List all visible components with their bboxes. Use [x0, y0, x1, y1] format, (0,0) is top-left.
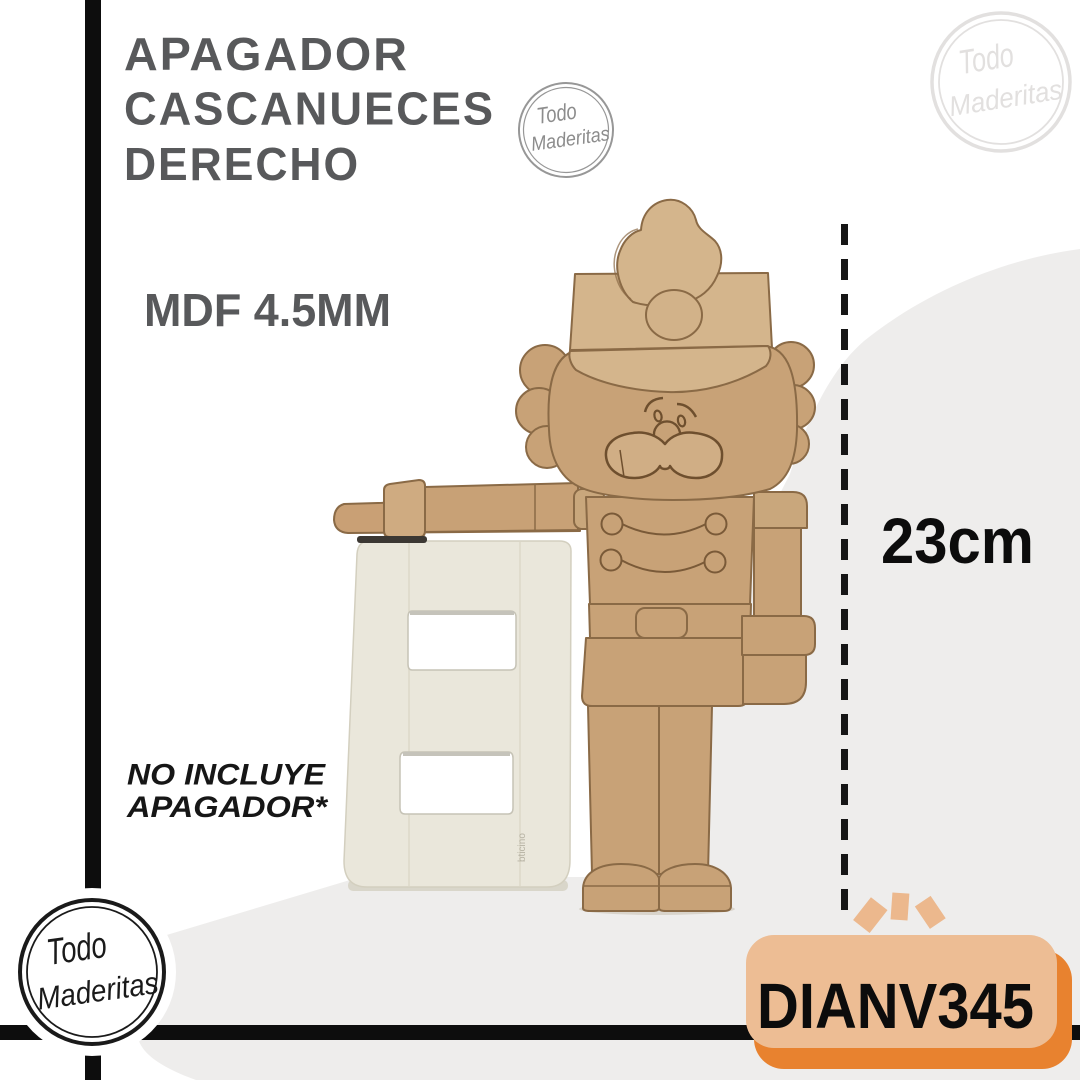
svg-text:APAGADOR*: APAGADOR* — [126, 791, 329, 824]
svg-text:DERECHO: DERECHO — [124, 138, 360, 190]
svg-text:APAGADOR: APAGADOR — [124, 28, 409, 80]
svg-text:Todo: Todo — [535, 97, 578, 128]
svg-text:MDF 4.5MM: MDF 4.5MM — [144, 284, 391, 336]
svg-text:23cm: 23cm — [881, 505, 1034, 577]
svg-text:bticino: bticino — [517, 833, 528, 862]
svg-text:DIANV345: DIANV345 — [757, 970, 1034, 1042]
svg-text:CASCANUECES: CASCANUECES — [124, 83, 495, 135]
svg-text:NO INCLUYE: NO INCLUYE — [127, 759, 326, 792]
svg-text:Todo: Todo — [44, 924, 109, 973]
